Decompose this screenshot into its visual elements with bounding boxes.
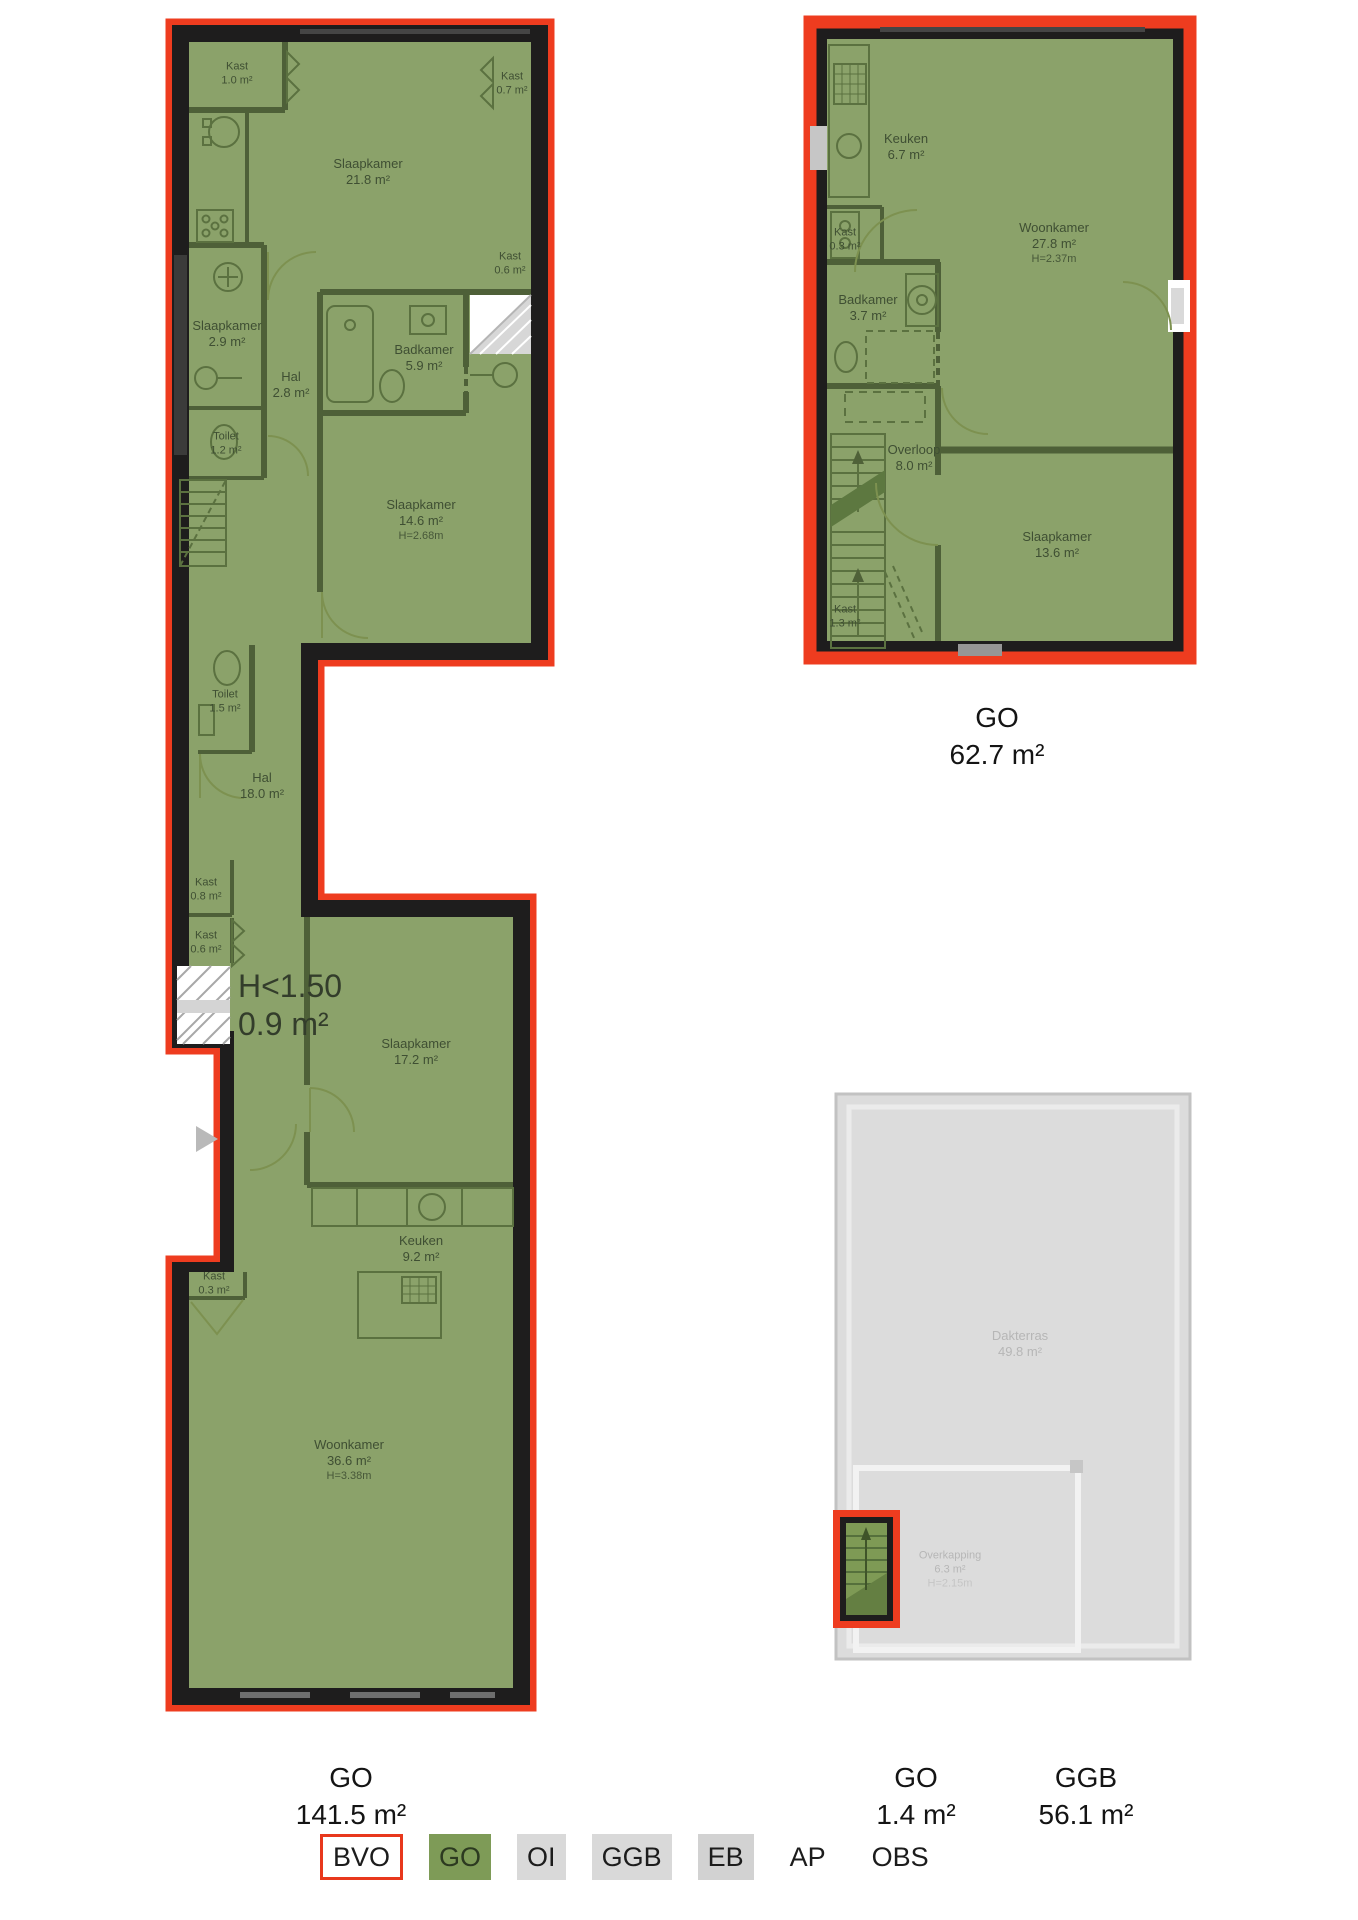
floor-plan-2 <box>810 22 1190 658</box>
room-label: Overkapping6.3 m²H=2.15m <box>919 1549 981 1590</box>
room-label: Slaapkamer21.8 m² <box>333 156 402 189</box>
room-label: Kast0.6 m² <box>190 929 221 957</box>
room-label: Toilet1.2 m² <box>210 430 241 458</box>
room-label: Slaapkamer17.2 m² <box>381 1036 450 1069</box>
caption-floor2: GO62.7 m² <box>950 700 1045 774</box>
shower-icon <box>214 263 242 291</box>
go-area-2 <box>827 39 1173 641</box>
room-label: Slaapkamer13.6 m² <box>1022 529 1091 562</box>
room-label: Hal2.8 m² <box>273 369 310 402</box>
room-label: Toilet1.5 m² <box>209 688 240 716</box>
legend-item-oi: OI <box>517 1834 566 1880</box>
caption-roof-ggb: GGB56.1 m² <box>1039 1760 1134 1834</box>
room-label: Kast0.8 m² <box>190 876 221 904</box>
legend-item-ap: AP <box>780 1834 836 1880</box>
floorplan-page: Kast1.0 m² Slaapkamer21.8 m² Kast0.7 m² … <box>0 0 1358 1920</box>
room-label: Hal18.0 m² <box>240 770 284 803</box>
legend-item-ggb: GGB <box>592 1834 672 1880</box>
void-corner-triangle <box>470 295 531 354</box>
legend-item-eb: EB <box>698 1834 754 1880</box>
legend-item-obs: OBS <box>862 1834 939 1880</box>
room-label: Slaapkamer14.6 m²H=2.68m <box>386 497 455 543</box>
room-label: Kast0.3 m² <box>198 1270 229 1298</box>
room-label: Keuken9.2 m² <box>399 1233 443 1266</box>
room-label: Badkamer3.7 m² <box>838 292 897 325</box>
room-label: Slaapkamer2.9 m² <box>192 318 261 351</box>
room-label: Kast0.3 m² <box>829 226 860 254</box>
room-label: Kast0.7 m² <box>496 70 527 98</box>
room-label: Keuken6.7 m² <box>884 131 928 164</box>
low-height-annotation: H<1.50 0.9 m² <box>238 968 342 1044</box>
room-label: Woonkamer27.8 m²H=2.37m <box>1019 220 1089 266</box>
room-label: Dakterras49.8 m² <box>992 1328 1048 1361</box>
room-label: Kast0.6 m² <box>494 250 525 278</box>
roof-terrace <box>833 1094 1190 1659</box>
caption-floor1: GO141.5 m² <box>296 1760 407 1834</box>
legend-item-go: GO <box>429 1834 491 1880</box>
legend-item-bvo: BVO <box>320 1834 403 1880</box>
room-label: Kast1.3 m² <box>829 603 860 631</box>
legend: BVO GO OI GGB EB AP OBS <box>320 1834 939 1880</box>
room-label: Woonkamer36.6 m²H=3.38m <box>314 1437 384 1483</box>
room-label: Badkamer5.9 m² <box>394 342 453 375</box>
caption-roof-go: GO1.4 m² <box>876 1760 955 1834</box>
overkapping-stairs-icon <box>833 1510 900 1628</box>
floorplan-graphics <box>0 0 1358 1920</box>
room-label: Overloop8.0 m² <box>888 442 941 475</box>
room-label: Kast1.0 m² <box>221 60 252 88</box>
low-height-hatch <box>177 966 230 1044</box>
